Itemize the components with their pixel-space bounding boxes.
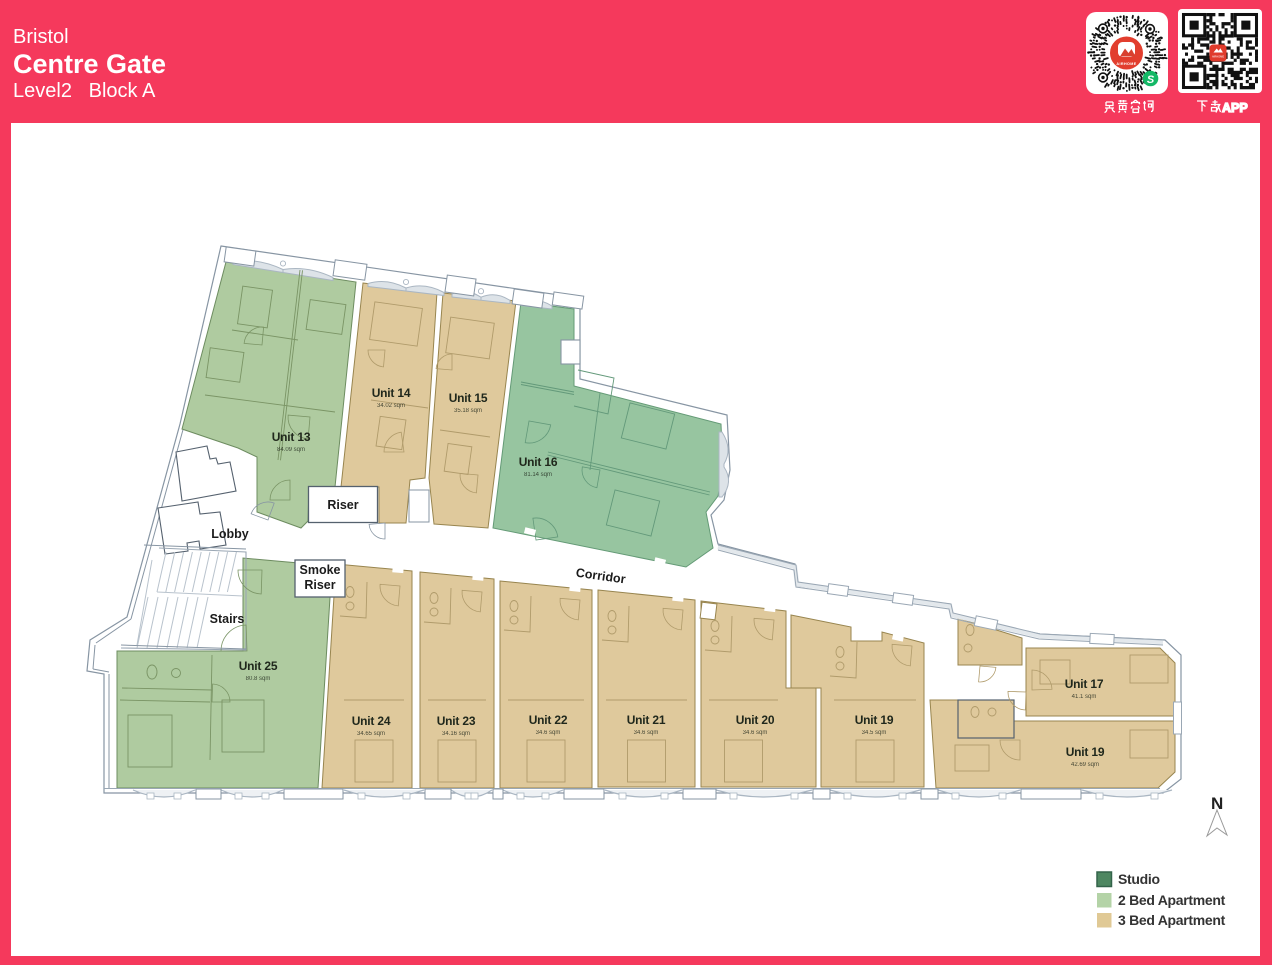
svg-text:84.09 sqm: 84.09 sqm	[277, 447, 305, 453]
svg-text:Unit 17: Unit 17	[1065, 677, 1104, 691]
svg-text:Unit 14: Unit 14	[372, 386, 411, 400]
svg-text:Riser: Riser	[304, 578, 335, 592]
svg-text:34.6 sqm: 34.6 sqm	[536, 730, 561, 736]
svg-text:Level2 Block A: Level2 Block A	[13, 80, 156, 102]
svg-text:Unit 15: Unit 15	[449, 391, 488, 405]
svg-text:Unit 25: Unit 25	[239, 659, 278, 673]
svg-text:Stairs: Stairs	[210, 612, 245, 626]
svg-text:41.1 sqm: 41.1 sqm	[1072, 694, 1097, 700]
svg-text:34.65 sqm: 34.65 sqm	[357, 731, 385, 737]
svg-text:81.14 sqm: 81.14 sqm	[524, 472, 552, 478]
svg-text:AIRHOME: AIRHOME	[1116, 62, 1136, 66]
svg-text:APP: APP	[1222, 101, 1248, 115]
svg-text:AIRHOME: AIRHOME	[1212, 55, 1224, 59]
svg-text:34.6 sqm: 34.6 sqm	[743, 730, 768, 736]
svg-text:Unit 13: Unit 13	[272, 430, 311, 444]
svg-text:Unit 22: Unit 22	[529, 713, 568, 727]
svg-text:Unit 20: Unit 20	[736, 713, 775, 727]
svg-text:34.6 sqm: 34.6 sqm	[634, 730, 659, 736]
svg-text:42.69 sqm: 42.69 sqm	[1071, 762, 1099, 768]
svg-text:Riser: Riser	[327, 498, 358, 512]
svg-text:Bristol: Bristol	[13, 26, 69, 48]
svg-text:3 Bed Apartment: 3 Bed Apartment	[1118, 912, 1226, 928]
svg-text:Studio: Studio	[1118, 871, 1160, 887]
svg-text:Unit 19: Unit 19	[1066, 745, 1105, 759]
svg-text:S: S	[1147, 74, 1155, 86]
svg-text:Unit 16: Unit 16	[519, 455, 558, 469]
svg-text:2 Bed Apartment: 2 Bed Apartment	[1118, 892, 1226, 908]
svg-text:Centre Gate: Centre Gate	[13, 49, 166, 79]
svg-text:Unit 24: Unit 24	[352, 714, 391, 728]
svg-text:Lobby: Lobby	[211, 527, 249, 541]
svg-text:34.5 sqm: 34.5 sqm	[862, 730, 887, 736]
svg-text:Unit 21: Unit 21	[627, 713, 666, 727]
svg-text:80.8 sqm: 80.8 sqm	[246, 676, 271, 682]
svg-text:35.18 sqm: 35.18 sqm	[454, 408, 482, 414]
svg-text:Smoke: Smoke	[300, 563, 341, 577]
svg-text:Unit 19: Unit 19	[855, 713, 894, 727]
svg-text:Unit 23: Unit 23	[437, 714, 476, 728]
svg-text:34.02 sqm: 34.02 sqm	[377, 403, 405, 409]
svg-text:34.16 sqm: 34.16 sqm	[442, 731, 470, 737]
